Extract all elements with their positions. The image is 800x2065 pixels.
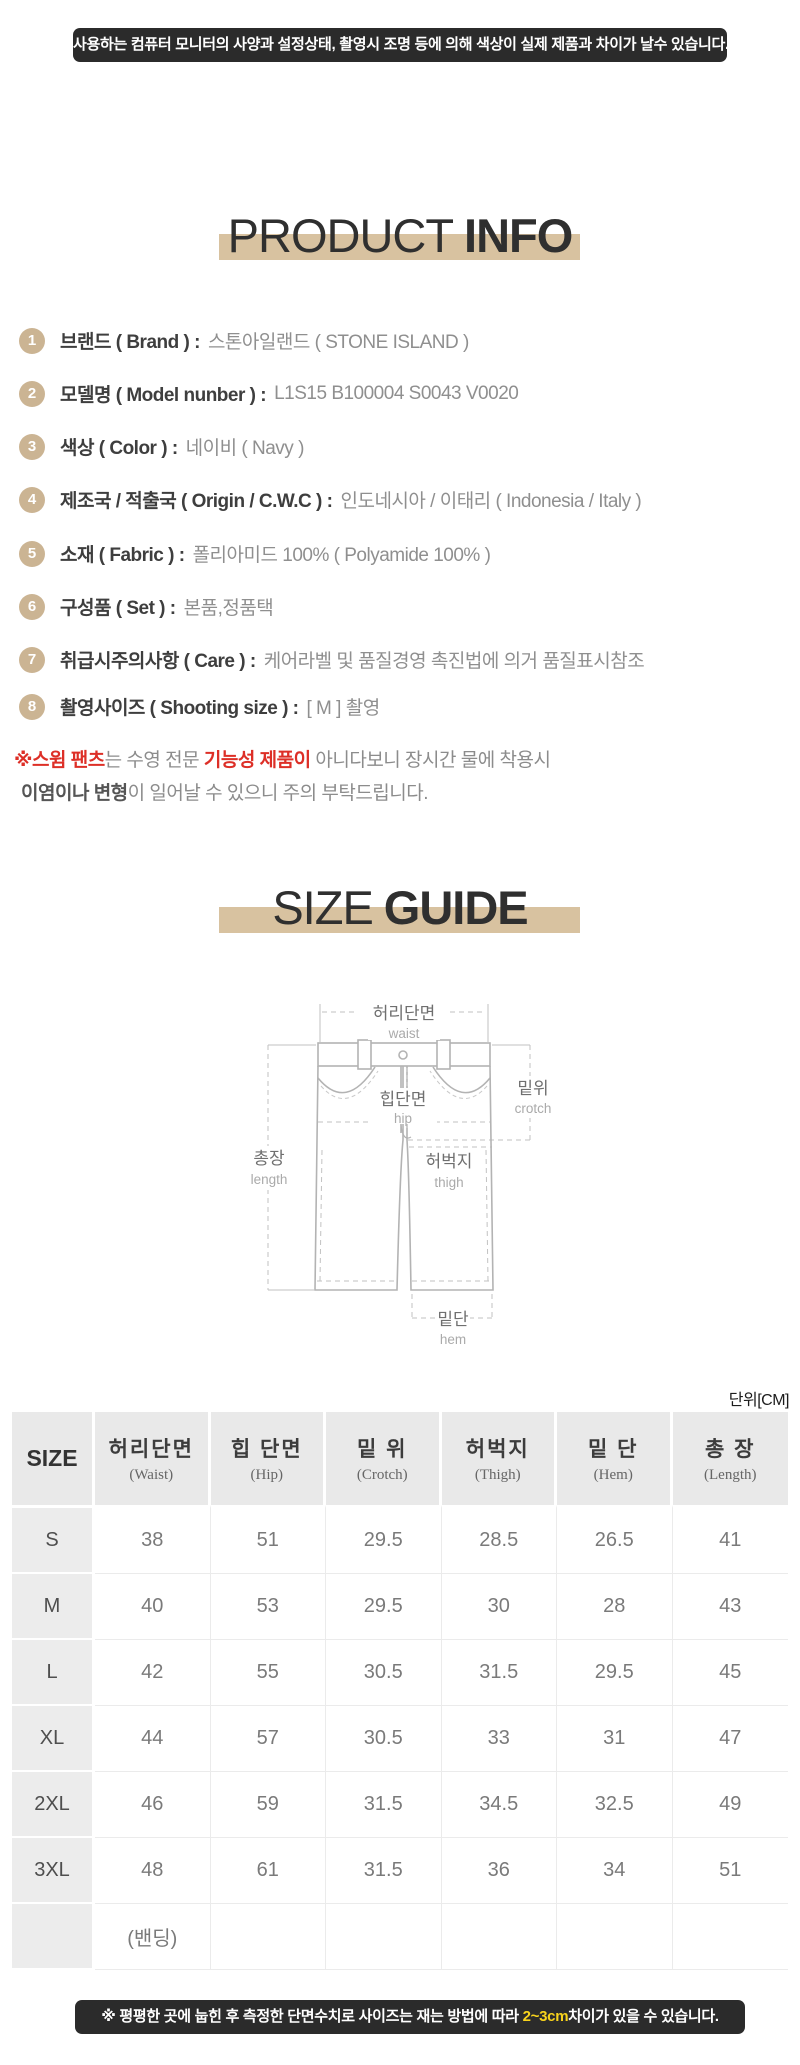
svg-text:hem: hem: [440, 1332, 466, 1347]
text-part: 이염이나 변형: [21, 783, 128, 804]
pants-measurement-diagram: 허리단면 waist 총장 length 밑위 crotch 힙단면 hip 허…: [185, 992, 585, 1352]
header-korean-label: 밑 단: [557, 1433, 670, 1463]
item-label: 모델명 ( Model nunber ) :: [60, 380, 266, 407]
table-header-cell: 총 장(Length): [673, 1412, 789, 1505]
size-cell: M: [12, 1574, 95, 1640]
header-korean-label: 밑 위: [326, 1433, 439, 1463]
text-part: 아니다보니 장시간 물에 착용시: [311, 750, 551, 771]
table-header-cell: 밑 단(Hem): [557, 1412, 673, 1505]
value-cell: 57: [211, 1706, 327, 1772]
value-cell: 61: [211, 1838, 327, 1904]
svg-text:허리단면: 허리단면: [373, 1004, 436, 1023]
product-detail-page: 사용하는 컴퓨터 모니터의 사양과 설정상태, 촬영시 조명 등에 의해 색상이…: [0, 0, 800, 2065]
value-cell: 31.5: [442, 1640, 558, 1706]
table-row: L425530.531.529.545: [12, 1640, 788, 1706]
value-cell: 29.5: [326, 1505, 442, 1574]
value-cell: 46: [95, 1772, 211, 1838]
value-cell: 49: [673, 1772, 789, 1838]
value-cell: 43: [673, 1574, 789, 1640]
value-cell: 30.5: [326, 1706, 442, 1772]
size-cell: L: [12, 1640, 95, 1706]
value-cell: 38: [95, 1505, 211, 1574]
svg-text:힙단면: 힙단면: [380, 1090, 427, 1109]
value-cell: 26.5: [557, 1505, 673, 1574]
svg-text:밑위: 밑위: [517, 1079, 548, 1098]
value-cell: 51: [211, 1505, 327, 1574]
item-value: 폴리아미드 100% ( Polyamide 100% ): [193, 540, 491, 567]
value-cell: 33: [442, 1706, 558, 1772]
size-cell: 3XL: [12, 1838, 95, 1904]
svg-text:hip: hip: [394, 1111, 412, 1126]
product-info-item: 4제조국 / 적출국 ( Origin / C.W.C ) :인도네시아 / 이…: [19, 486, 641, 513]
svg-text:허벅지: 허벅지: [426, 1152, 473, 1171]
product-info-item: 2모델명 ( Model nunber ) :L1S15 B100004 S00…: [19, 380, 518, 407]
header-english-label: (Crotch): [326, 1467, 439, 1484]
item-label: 브랜드 ( Brand ) :: [60, 327, 200, 354]
table-row: XL445730.5333147: [12, 1706, 788, 1772]
item-value: 네이비 ( Navy ): [186, 433, 304, 460]
size-cell: S: [12, 1505, 95, 1574]
size-table: SIZE허리단면(Waist)힙 단면(Hip)밑 위(Crotch)허벅지(T…: [12, 1412, 788, 1970]
item-value: 인도네시아 / 이태리 ( Indonesia / Italy ): [340, 486, 641, 513]
header-english-label: (Thigh): [442, 1467, 555, 1484]
value-cell: 55: [211, 1640, 327, 1706]
item-value: 본품,정품택: [184, 593, 274, 620]
value-cell: 31.5: [326, 1772, 442, 1838]
size-cell: [12, 1904, 95, 1970]
header-korean-label: 허리단면: [95, 1433, 208, 1463]
item-number-badge: 4: [19, 487, 45, 513]
value-cell: 34: [557, 1838, 673, 1904]
table-row: S385129.528.526.541: [12, 1505, 788, 1574]
note-line: 이염이나 변형이 일어날 수 있으니 주의 부탁드립니다.: [14, 777, 550, 810]
svg-text:length: length: [251, 1172, 288, 1187]
table-row: 2XL465931.534.532.549: [12, 1772, 788, 1838]
measure-notice-banner: ※ 평평한 곳에 눕힌 후 측정한 단면수치로 사이즈는 재는 방법에 따라 2…: [75, 2000, 745, 2034]
table-row: 3XL486131.5363451: [12, 1838, 788, 1904]
text-part: 차이가 있을 수 있습니다.: [568, 2008, 718, 2025]
value-cell: [326, 1904, 442, 1970]
product-info-item: 7취급시주의사항 ( Care ) :케어라벨 및 품질경영 촉진법에 의거 품…: [19, 646, 644, 673]
value-cell: 29.5: [557, 1640, 673, 1706]
header-korean-label: 총 장: [673, 1433, 789, 1463]
table-header-row: SIZE허리단면(Waist)힙 단면(Hip)밑 위(Crotch)허벅지(T…: [12, 1412, 788, 1505]
item-label: 구성품 ( Set ) :: [60, 593, 176, 620]
value-cell: 28: [557, 1574, 673, 1640]
size-guide-title: SIZEGUIDE: [0, 884, 800, 931]
title-bold-text: GUIDE: [384, 881, 528, 934]
unit-label: 단위[CM]: [729, 1386, 789, 1410]
product-info-item: 1브랜드 ( Brand ) :스톤아일랜드 ( STONE ISLAND ): [19, 327, 469, 354]
size-cell: XL: [12, 1706, 95, 1772]
text-part: ※스윔 팬츠: [14, 750, 105, 771]
table-row: M405329.5302843: [12, 1574, 788, 1640]
value-cell: [211, 1904, 327, 1970]
text-part: 기능성 제품이: [204, 750, 311, 771]
product-info-item: 6구성품 ( Set ) :본품,정품택: [19, 593, 273, 620]
value-cell: 40: [95, 1574, 211, 1640]
table-header-cell: 힙 단면(Hip): [211, 1412, 327, 1505]
item-value: L1S15 B100004 S0043 V0020: [274, 383, 518, 405]
table-header-cell: 허벅지(Thigh): [442, 1412, 558, 1505]
value-cell: 42: [95, 1640, 211, 1706]
item-number-badge: 2: [19, 381, 45, 407]
product-info-item: 5소재 ( Fabric ) :폴리아미드 100% ( Polyamide 1…: [19, 540, 490, 567]
value-cell: 34.5: [442, 1772, 558, 1838]
title-light-text: SIZE: [272, 881, 372, 934]
title-light-text: PRODUCT: [228, 209, 453, 262]
header-english-label: (Hip): [211, 1467, 324, 1484]
item-value: 케어라벨 및 품질경영 촉진법에 의거 품질표시참조: [264, 646, 644, 673]
value-cell: 30.5: [326, 1640, 442, 1706]
value-cell: 51: [673, 1838, 789, 1904]
text-part: ※ 평평한 곳에 눕힌 후 측정한 단면수치로 사이즈는 재는 방법에 따라: [101, 2008, 522, 2025]
value-cell: 29.5: [326, 1574, 442, 1640]
header-korean-label: 허벅지: [442, 1433, 555, 1463]
header-korean-label: 힙 단면: [211, 1433, 324, 1463]
svg-text:밑단: 밑단: [437, 1310, 469, 1329]
item-number-badge: 5: [19, 541, 45, 567]
value-cell: [442, 1904, 558, 1970]
title-bold-text: INFO: [464, 209, 572, 262]
value-cell: 47: [673, 1706, 789, 1772]
svg-text:총장: 총장: [253, 1149, 285, 1168]
value-cell: 31: [557, 1706, 673, 1772]
product-info-item: 8촬영사이즈 ( Shooting size ) :[ M ] 촬영: [19, 693, 380, 720]
text-part: 2~3cm: [523, 2008, 569, 2025]
value-cell: 45: [673, 1640, 789, 1706]
item-value: [ M ] 촬영: [307, 693, 380, 720]
item-value: 스톤아일랜드 ( STONE ISLAND ): [208, 327, 469, 354]
svg-text:waist: waist: [388, 1026, 420, 1041]
item-label: 촬영사이즈 ( Shooting size ) :: [60, 693, 299, 720]
value-cell: 30: [442, 1574, 558, 1640]
value-cell: 31.5: [326, 1838, 442, 1904]
item-label: 소재 ( Fabric ) :: [60, 540, 185, 567]
value-cell: 48: [95, 1838, 211, 1904]
note-line: ※스윔 팬츠는 수영 전문 기능성 제품이 아니다보니 장시간 물에 착용시: [14, 744, 550, 777]
product-info-title: PRODUCTINFO: [0, 212, 800, 259]
item-number-badge: 3: [19, 434, 45, 460]
value-cell: 28.5: [442, 1505, 558, 1574]
header-english-label: (Hem): [557, 1467, 670, 1484]
swim-caution-note: ※스윔 팬츠는 수영 전문 기능성 제품이 아니다보니 장시간 물에 착용시 이…: [14, 744, 550, 810]
table-header-cell: 밑 위(Crotch): [326, 1412, 442, 1505]
size-cell: 2XL: [12, 1772, 95, 1838]
diagram-label-crotch: 밑위 crotch: [515, 1079, 552, 1116]
text-part: 이 일어날 수 있으니 주의 부탁드립니다.: [128, 783, 428, 804]
monitor-notice-banner: 사용하는 컴퓨터 모니터의 사양과 설정상태, 촬영시 조명 등에 의해 색상이…: [73, 28, 727, 62]
item-number-badge: 6: [19, 594, 45, 620]
item-number-badge: 1: [19, 328, 45, 354]
table-row: (밴딩): [12, 1904, 788, 1970]
header-english-label: (Waist): [95, 1467, 208, 1484]
svg-text:thigh: thigh: [434, 1175, 463, 1190]
svg-text:crotch: crotch: [515, 1101, 552, 1116]
item-label: 색상 ( Color ) :: [60, 433, 178, 460]
value-cell: [557, 1904, 673, 1970]
text-part: 는 수영 전문: [105, 750, 204, 771]
item-number-badge: 8: [19, 694, 45, 720]
header-english-label: (Length): [673, 1467, 789, 1484]
item-label: 취급시주의사항 ( Care ) :: [60, 646, 256, 673]
value-cell: (밴딩): [95, 1904, 211, 1970]
value-cell: 32.5: [557, 1772, 673, 1838]
value-cell: 59: [211, 1772, 327, 1838]
value-cell: 44: [95, 1706, 211, 1772]
value-cell: 41: [673, 1505, 789, 1574]
value-cell: 53: [211, 1574, 327, 1640]
item-label: 제조국 / 적출국 ( Origin / C.W.C ) :: [60, 486, 332, 513]
diagram-label-hem: 밑단 hem: [437, 1310, 469, 1347]
value-cell: [673, 1904, 789, 1970]
item-number-badge: 7: [19, 647, 45, 673]
product-info-item: 3색상 ( Color ) :네이비 ( Navy ): [19, 433, 304, 460]
table-header-size: SIZE: [12, 1412, 95, 1505]
value-cell: 36: [442, 1838, 558, 1904]
table-header-cell: 허리단면(Waist): [95, 1412, 211, 1505]
